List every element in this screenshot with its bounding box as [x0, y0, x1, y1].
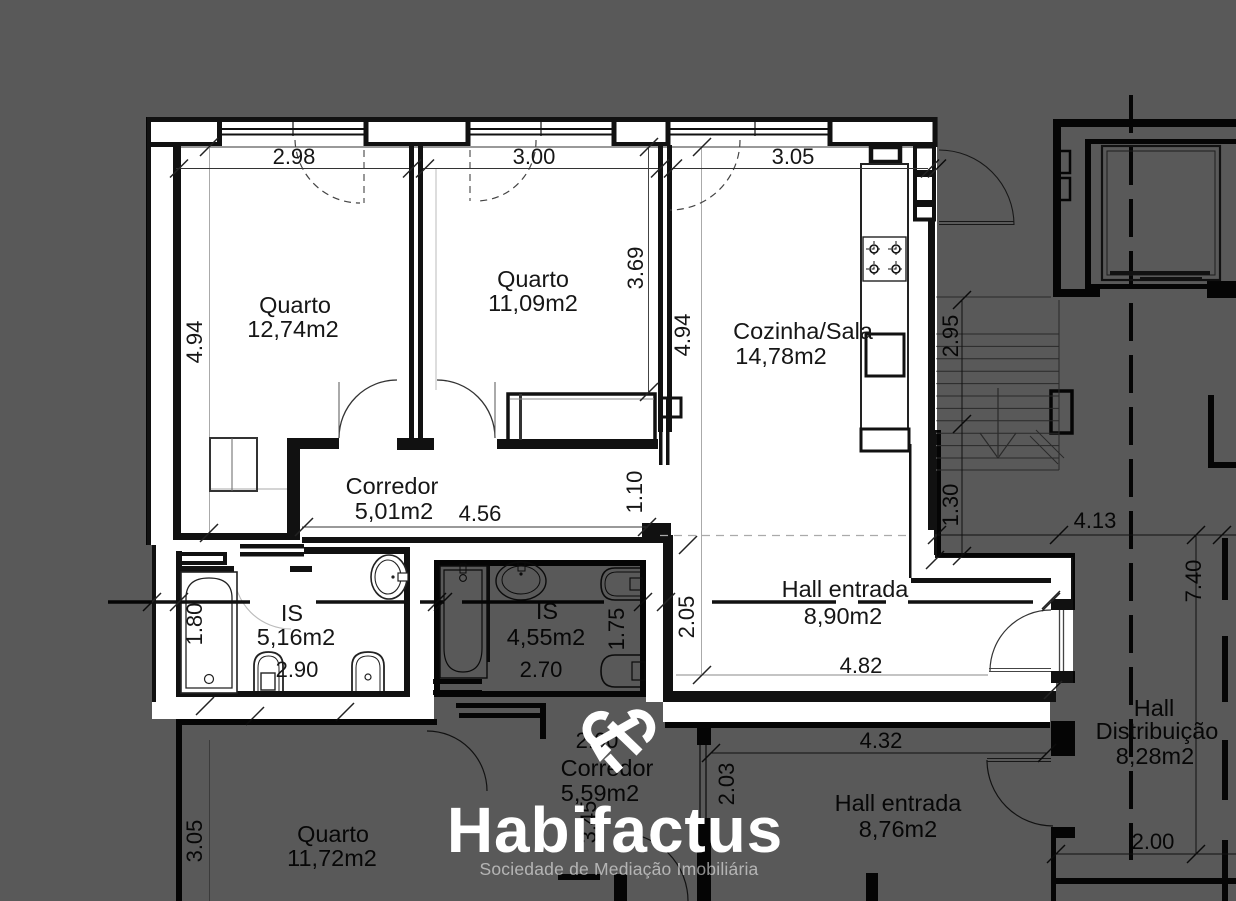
svg-text:4.82: 4.82: [840, 653, 883, 678]
svg-text:2.90: 2.90: [276, 657, 319, 682]
svg-text:1.10: 1.10: [622, 471, 647, 514]
svg-text:5,16m2: 5,16m2: [257, 624, 335, 650]
svg-text:Corredor: Corredor: [346, 473, 439, 499]
svg-text:4.94: 4.94: [182, 321, 207, 364]
svg-text:Cozinha/Sala: Cozinha/Sala: [733, 318, 874, 344]
svg-text:14,78m2: 14,78m2: [735, 343, 826, 369]
svg-text:Quarto: Quarto: [497, 266, 569, 292]
svg-text:Quarto: Quarto: [259, 292, 331, 318]
svg-text:Habifactus: Habifactus: [447, 794, 783, 866]
svg-text:1.80: 1.80: [182, 603, 207, 646]
svg-text:8,90m2: 8,90m2: [804, 603, 882, 629]
svg-text:4.56: 4.56: [459, 501, 502, 526]
svg-text:Hall entrada: Hall entrada: [782, 576, 910, 602]
svg-text:4.94: 4.94: [670, 314, 695, 357]
svg-text:3.00: 3.00: [513, 144, 556, 169]
svg-text:3.69: 3.69: [623, 247, 648, 290]
svg-text:3.05: 3.05: [772, 144, 815, 169]
svg-text:IS: IS: [281, 600, 303, 626]
svg-text:5,01m2: 5,01m2: [355, 498, 433, 524]
svg-text:2.05: 2.05: [674, 596, 699, 639]
svg-text:2.98: 2.98: [273, 144, 316, 169]
svg-text:12,74m2: 12,74m2: [247, 316, 338, 342]
svg-text:Sociedade de Mediação Imobiliá: Sociedade de Mediação Imobiliária: [480, 859, 759, 879]
svg-text:11,09m2: 11,09m2: [488, 290, 578, 316]
